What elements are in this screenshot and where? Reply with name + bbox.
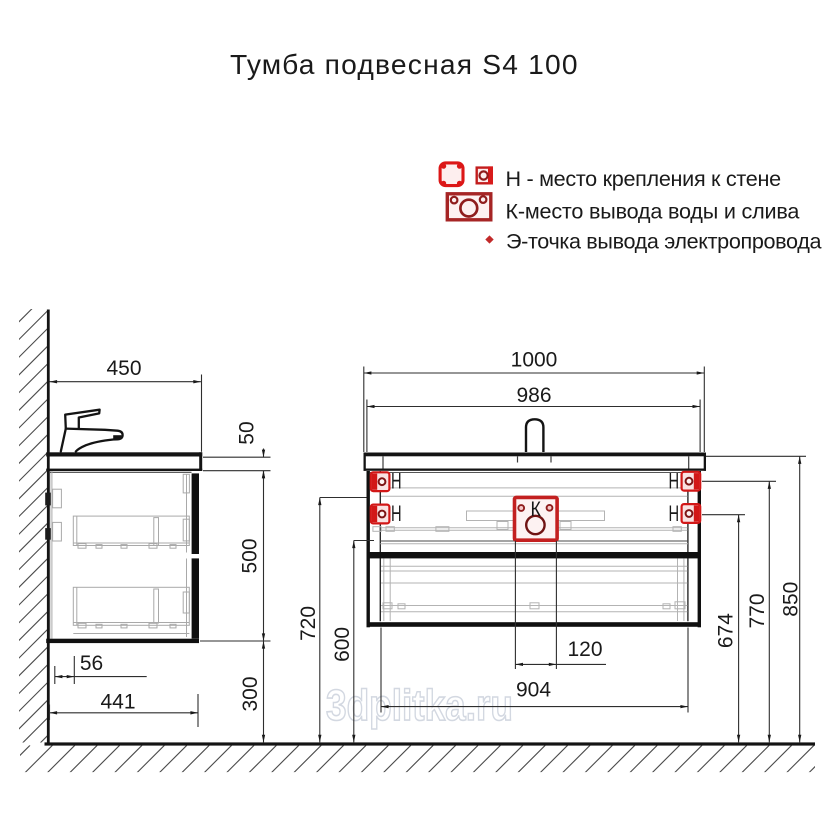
- svg-text:986: 986: [516, 384, 551, 407]
- svg-text:К: К: [531, 497, 542, 521]
- svg-text:300: 300: [239, 676, 262, 711]
- svg-text:50: 50: [236, 421, 259, 444]
- svg-text:Н: Н: [669, 501, 680, 526]
- svg-text:Э-точка вывода электропровода: Э-точка вывода электропровода: [506, 228, 822, 253]
- svg-text:770: 770: [746, 593, 769, 628]
- svg-text:Н: Н: [669, 469, 680, 494]
- svg-text:441: 441: [100, 691, 135, 714]
- svg-text:Н: Н: [391, 501, 402, 526]
- svg-text:450: 450: [106, 357, 141, 380]
- svg-text:674: 674: [715, 613, 738, 648]
- svg-text:1000: 1000: [511, 348, 558, 371]
- svg-text:К-место вывода воды и слива: К-место вывода воды и слива: [506, 198, 801, 223]
- svg-text:Н - место крепления к стене: Н - место крепления к стене: [506, 166, 782, 191]
- svg-text:56: 56: [80, 652, 103, 675]
- svg-text:850: 850: [780, 582, 803, 617]
- svg-text:904: 904: [516, 678, 551, 701]
- svg-text:600: 600: [331, 627, 354, 662]
- svg-text:Н: Н: [391, 469, 402, 494]
- svg-text:Тумба подвесная S4 100: Тумба подвесная S4 100: [230, 48, 579, 80]
- svg-text:720: 720: [297, 606, 320, 641]
- svg-text:500: 500: [238, 538, 261, 573]
- svg-text:120: 120: [567, 638, 602, 661]
